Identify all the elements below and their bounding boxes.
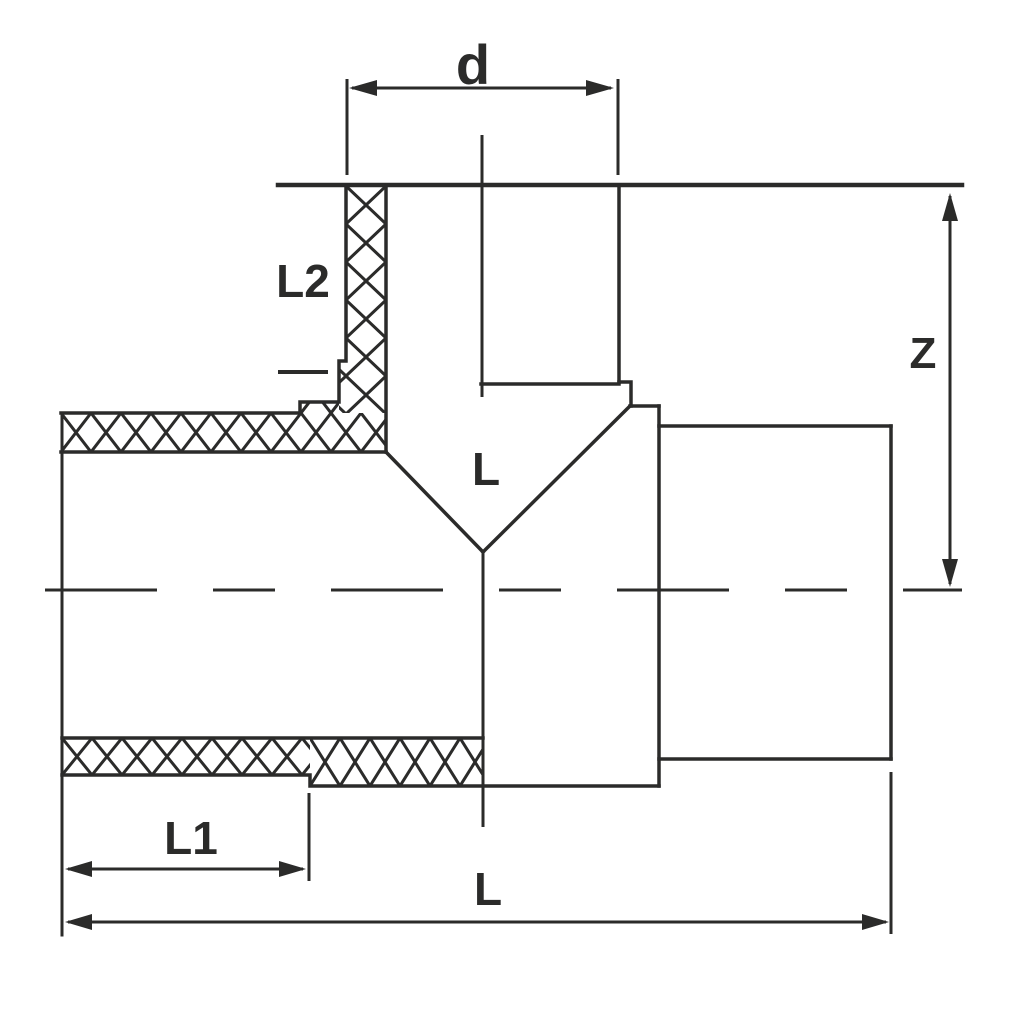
center-l-label: L xyxy=(472,443,500,495)
bottom-band-fusion-zone-hatch-right xyxy=(310,738,483,786)
bottom-band-fusion-zone-hatch-left xyxy=(62,738,310,775)
l-arrowhead-right xyxy=(862,914,889,930)
l1-dimension-label: L1 xyxy=(164,812,218,864)
d-dimension-label: d xyxy=(456,33,490,96)
dimension-z xyxy=(942,193,958,587)
l-overall-dimension-label: L xyxy=(474,863,502,915)
right-chamfer-line xyxy=(483,406,630,552)
top-band-fusion-zone-hatch xyxy=(61,402,386,452)
branch-socket-step xyxy=(619,382,631,406)
centerlines xyxy=(45,135,962,827)
pipe-tee-technical-drawing: d L2 Z L L1 L xyxy=(0,0,1024,1024)
d-arrowhead-left xyxy=(349,80,377,96)
l2-dimension-label: L2 xyxy=(276,255,330,307)
l-arrowhead-left xyxy=(65,914,92,930)
d-arrowhead-right xyxy=(586,80,614,96)
z-dimension-label: Z xyxy=(910,329,937,378)
z-arrowhead-down xyxy=(942,559,958,587)
l1-arrowhead-left xyxy=(65,861,92,877)
z-arrowhead-up xyxy=(942,193,958,221)
left-chamfer-line xyxy=(386,452,483,552)
l1-arrowhead-right xyxy=(279,861,306,877)
